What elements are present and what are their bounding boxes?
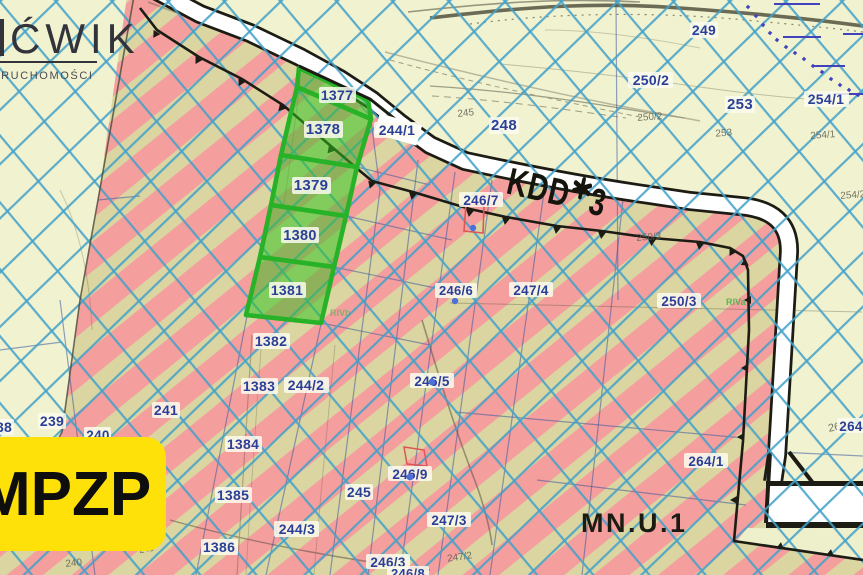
svg-text:1383: 1383 — [243, 378, 275, 394]
svg-text:254/1: 254/1 — [808, 91, 845, 107]
svg-text:250/3: 250/3 — [636, 231, 662, 244]
svg-text:1378: 1378 — [306, 121, 341, 138]
svg-text:246/7: 246/7 — [463, 193, 498, 208]
svg-text:244/3: 244/3 — [279, 521, 316, 537]
svg-text:254/2: 254/2 — [840, 189, 863, 202]
svg-text:1379: 1379 — [294, 177, 329, 194]
svg-text:239: 239 — [40, 413, 64, 429]
svg-text:1386: 1386 — [203, 539, 235, 555]
svg-text:250/2: 250/2 — [633, 72, 670, 88]
svg-text:238: 238 — [0, 419, 12, 435]
svg-text:245: 245 — [347, 484, 371, 500]
svg-text:MN.U.1: MN.U.1 — [581, 508, 688, 538]
svg-text:1384: 1384 — [227, 436, 259, 452]
svg-text:RIVa: RIVa — [726, 297, 747, 307]
svg-text:241: 241 — [154, 402, 178, 418]
svg-text:1377: 1377 — [321, 87, 353, 103]
svg-text:246/6: 246/6 — [439, 283, 473, 298]
svg-text:264: 264 — [839, 419, 863, 434]
svg-text:253: 253 — [727, 96, 753, 113]
svg-text:1385: 1385 — [217, 487, 249, 503]
svg-text:254/1: 254/1 — [810, 129, 836, 142]
svg-text:247/4: 247/4 — [513, 283, 548, 298]
svg-text:RIVb: RIVb — [330, 308, 351, 318]
svg-text:244/1: 244/1 — [379, 122, 416, 138]
svg-text:1382: 1382 — [255, 333, 287, 349]
svg-text:249: 249 — [692, 22, 716, 38]
svg-text:245: 245 — [457, 107, 475, 120]
svg-text:246/8: 246/8 — [391, 566, 425, 575]
svg-text:264/1: 264/1 — [688, 454, 723, 469]
svg-text:1380: 1380 — [283, 228, 316, 244]
svg-text:240: 240 — [65, 557, 83, 570]
svg-text:1381: 1381 — [271, 282, 303, 298]
svg-text:244/2: 244/2 — [288, 377, 325, 393]
svg-text:250/2: 250/2 — [637, 111, 663, 124]
svg-text:247/3: 247/3 — [431, 513, 466, 528]
svg-text:250/3: 250/3 — [661, 294, 696, 309]
svg-text:248: 248 — [491, 117, 517, 134]
svg-text:253: 253 — [715, 127, 733, 139]
